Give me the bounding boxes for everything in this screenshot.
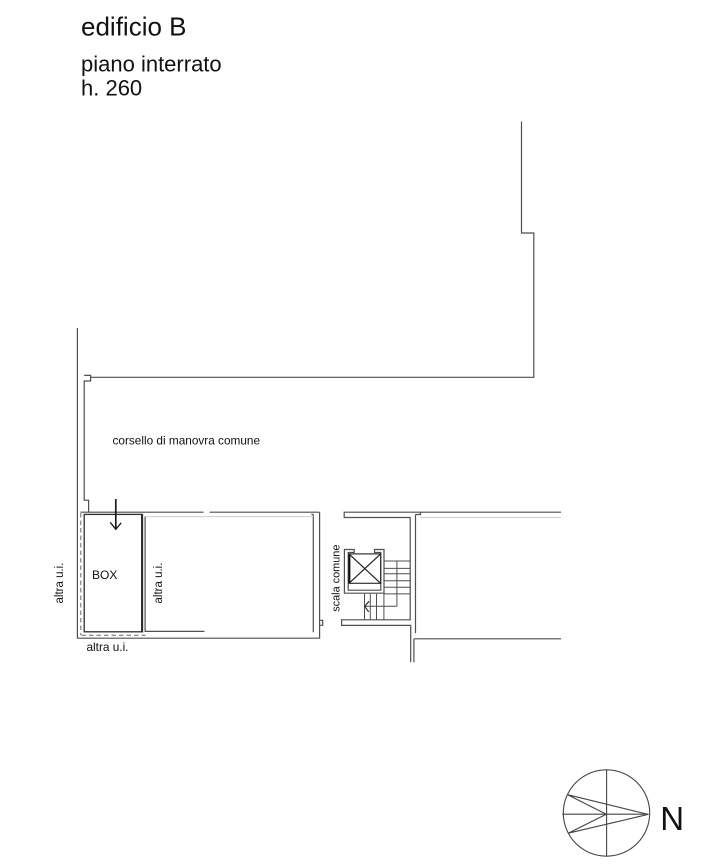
svg-text:altra u.i.: altra u.i. xyxy=(54,563,66,604)
svg-text:piano interrato: piano interrato xyxy=(81,52,222,77)
svg-text:h. 260: h. 260 xyxy=(81,76,142,101)
svg-text:BOX: BOX xyxy=(92,568,117,582)
svg-text:N: N xyxy=(660,800,684,837)
svg-text:scala comune: scala comune xyxy=(331,545,343,612)
svg-text:altra u.i.: altra u.i. xyxy=(87,640,129,654)
svg-text:altra u.i.: altra u.i. xyxy=(153,563,165,604)
svg-text:edificio B: edificio B xyxy=(81,12,187,42)
svg-text:corsello di manovra comune: corsello di manovra comune xyxy=(113,434,261,448)
